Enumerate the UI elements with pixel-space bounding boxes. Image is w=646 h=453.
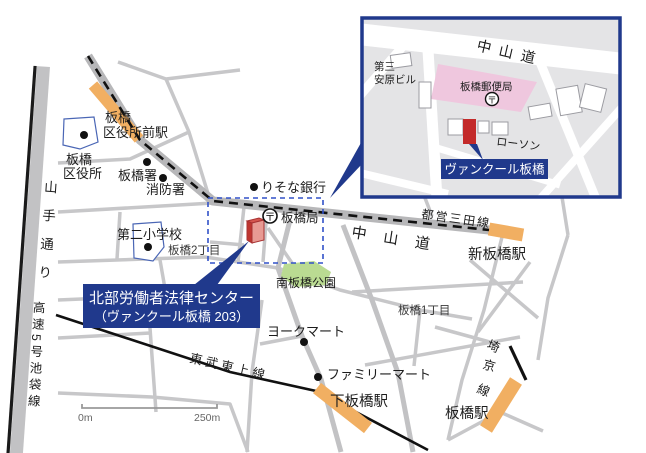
inset-building — [448, 119, 463, 135]
label-fire-station: 消防署 — [146, 182, 185, 197]
ward-office-block — [63, 117, 98, 149]
scale-line — [82, 404, 217, 408]
saikyo-line — [510, 346, 526, 380]
inset-label-yasuhara-2: 安原ビル — [374, 73, 416, 86]
inset-building — [556, 85, 582, 115]
police-dot — [143, 158, 151, 166]
inset-target-label: ヴァンクール板橋 — [441, 159, 548, 179]
target-building-front — [252, 220, 264, 243]
map-canvas: 〒 板橋 区役所前駅 板橋 区役所 板橋署 消防署 りそな銀行 板橋局 第二小学… — [0, 0, 646, 453]
inset-target-text: ヴァンクール板橋 — [444, 162, 545, 177]
label-ward-office-2: 区役所 — [63, 166, 102, 181]
label-itabashi-2chome: 板橋2丁目 — [168, 243, 220, 257]
post-mark: 〒 — [265, 212, 276, 224]
label-saikyo-2: 京 — [481, 357, 497, 374]
inset-building — [419, 82, 431, 108]
target-building-marker — [247, 218, 264, 243]
inset-post-mark: 〒 — [487, 96, 497, 107]
scale-end: 250m — [194, 412, 221, 424]
access-map: 〒 板橋 区役所前駅 板橋 区役所 板橋署 消防署 りそな銀行 板橋局 第二小学… — [0, 0, 646, 453]
label-police: 板橋署 — [118, 168, 157, 183]
label-kuyakushomae-station-1: 板橋 — [105, 110, 131, 125]
inset-map: 〒 中山道 第三 安原ビル 板橋郵便局 ローソン ヴァンクール板橋 — [356, 18, 624, 199]
label-resona-bank: りそな銀行 — [261, 180, 326, 195]
family-mart-dot — [314, 373, 322, 381]
target-building-side — [247, 221, 252, 243]
legal-center-line1: 北部労働者法律センター — [89, 290, 254, 307]
resona-dot — [250, 183, 258, 191]
legal-center-label: 北部労働者法律センター （ヴァンクール板橋 203） — [83, 284, 260, 328]
label-itabashi-station: 板橋駅 — [445, 404, 489, 422]
inset-label-yasuhara-1: 第三 — [374, 60, 395, 73]
legal-center-line2: （ヴァンクール板橋 203） — [94, 309, 249, 324]
york-mart-dot — [300, 338, 308, 346]
ward-office-dot — [80, 131, 88, 139]
label-itabashi-post: 板橋局 — [281, 211, 319, 225]
fire-station-dot — [159, 174, 167, 182]
label-ward-office-1: 板橋 — [66, 152, 92, 167]
label-park: 南板橋公園 — [276, 275, 336, 290]
label-shimo-itabashi-station: 下板橋駅 — [330, 392, 388, 410]
inset-pointer — [330, 141, 362, 198]
label-itabashi-1chome: 板橋1丁目 — [398, 303, 450, 317]
label-tobu-tojo-line: 東武東上線 — [188, 350, 269, 383]
label-school: 第二小学校 — [117, 227, 182, 242]
inset-post-symbol: 〒 — [486, 93, 499, 107]
label-saikyo-3: 線 — [475, 381, 493, 400]
inset-label-post-office: 板橋郵便局 — [460, 80, 513, 93]
shin-itabashi-station-bar — [489, 229, 523, 235]
inset-target-building — [463, 119, 476, 144]
school-dot — [144, 243, 152, 251]
inset-building — [478, 121, 489, 133]
post-office-symbol: 〒 — [263, 209, 277, 224]
inset-building — [492, 122, 508, 135]
scale-bar: 0m 250m — [78, 404, 221, 424]
label-kuyakushomae-station-2: 区役所前駅 — [103, 125, 168, 140]
label-family-mart: ファミリーマート — [327, 367, 431, 382]
label-shin-itabashi-station: 新板橋駅 — [468, 245, 526, 263]
label-york-mart: ヨークマート — [267, 324, 345, 339]
label-nakasendo: 中山道 — [350, 224, 447, 256]
scale-start: 0m — [78, 412, 93, 424]
